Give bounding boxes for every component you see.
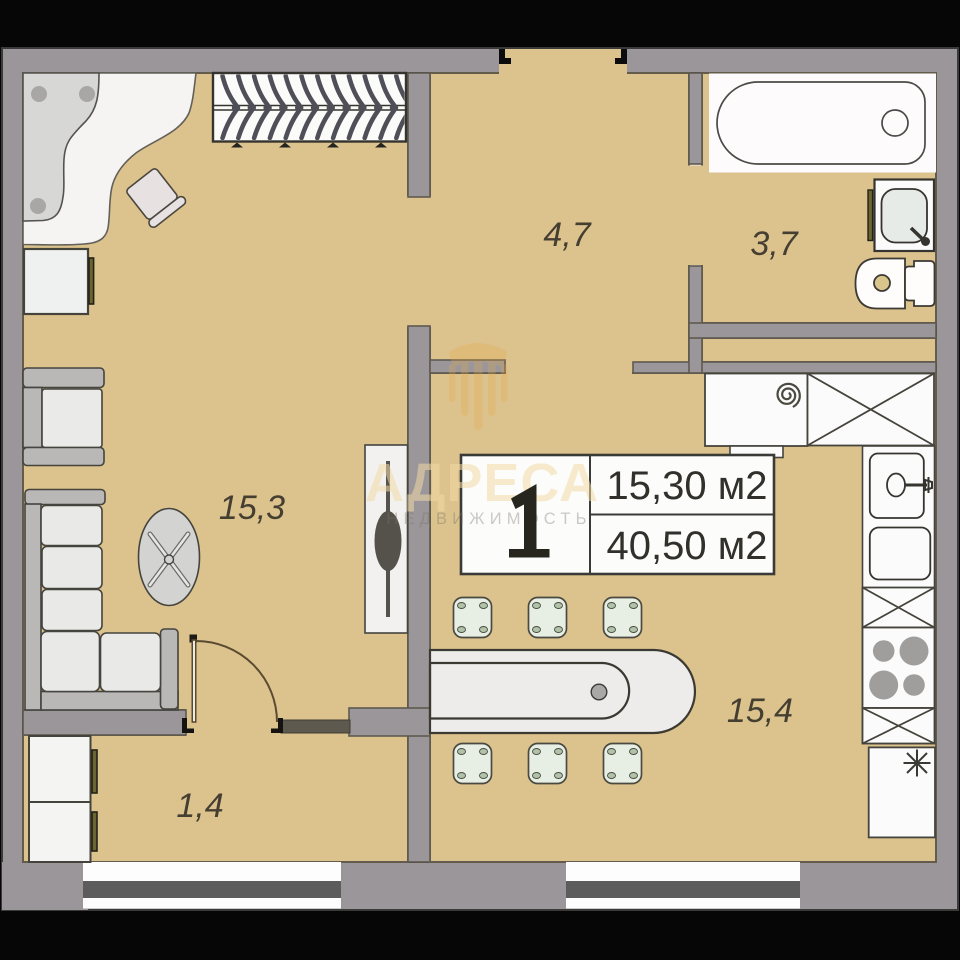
svg-text:АДРЕСА: АДРЕСА [365,453,599,513]
svg-text:15,30 м2: 15,30 м2 [607,464,768,508]
svg-text:3,7: 3,7 [750,225,798,263]
svg-text:15,4: 15,4 [727,692,793,730]
svg-text:40,50 м2: 40,50 м2 [607,524,768,568]
svg-text:4,7: 4,7 [543,216,591,254]
svg-text:НЕДВИЖИМОСТЬ: НЕДВИЖИМОСТЬ [386,510,591,528]
svg-text:15,3: 15,3 [219,489,285,527]
svg-text:1,4: 1,4 [176,787,223,825]
